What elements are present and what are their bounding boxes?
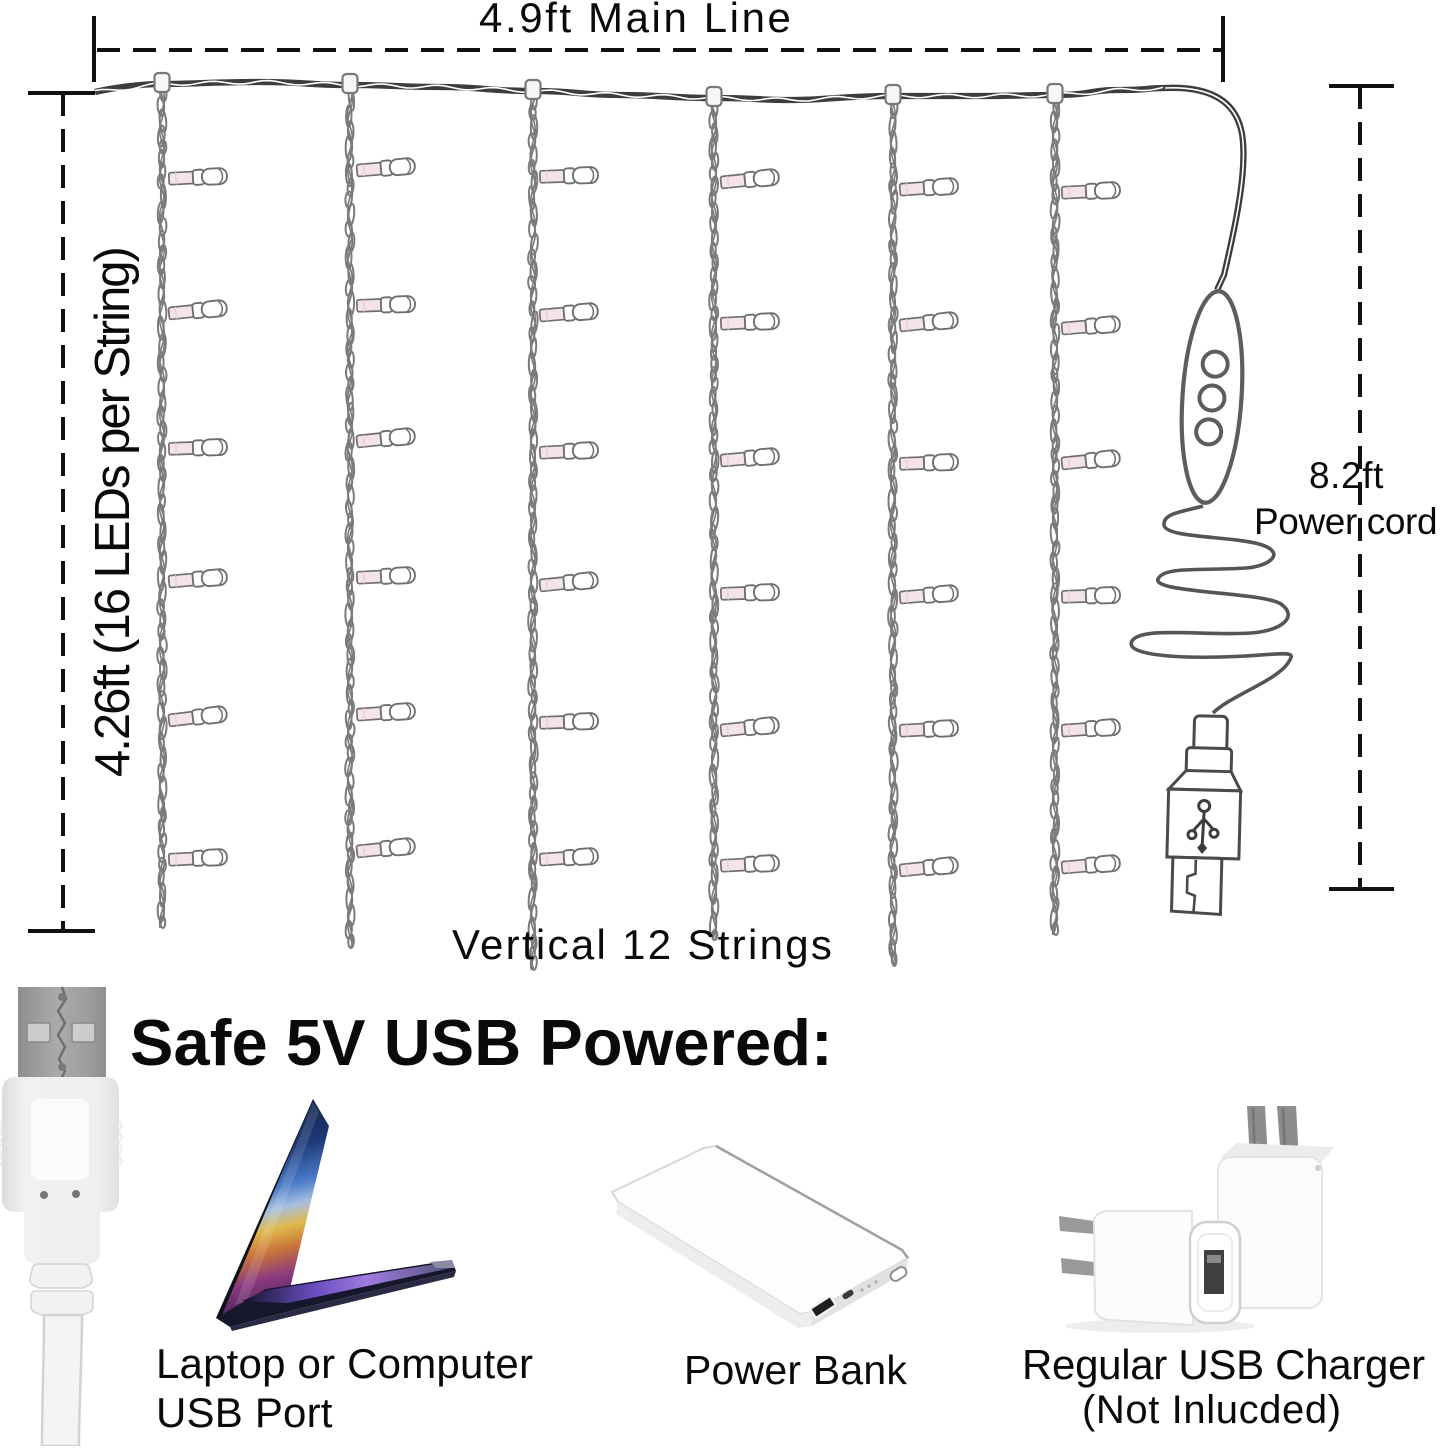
svg-text:Regular USB Charger: Regular USB Charger — [1022, 1341, 1425, 1388]
svg-text:4.26ft (16 LEDs per String): 4.26ft (16 LEDs per String) — [86, 248, 140, 777]
svg-text:4.9ft Main Line: 4.9ft Main Line — [479, 0, 794, 41]
svg-text:8.2ft: 8.2ft — [1309, 455, 1384, 496]
svg-text:Vertical 12 Strings: Vertical 12 Strings — [452, 921, 834, 968]
svg-text:Power cord: Power cord — [1254, 501, 1437, 542]
svg-text:(Not Inlucded): (Not Inlucded) — [1082, 1388, 1342, 1432]
svg-text:USB Port: USB Port — [156, 1389, 333, 1436]
svg-text:Safe 5V USB Powered:: Safe 5V USB Powered: — [130, 1006, 833, 1079]
svg-text:Power Bank: Power Bank — [684, 1347, 907, 1393]
svg-text:Laptop or Computer: Laptop or Computer — [156, 1340, 533, 1387]
